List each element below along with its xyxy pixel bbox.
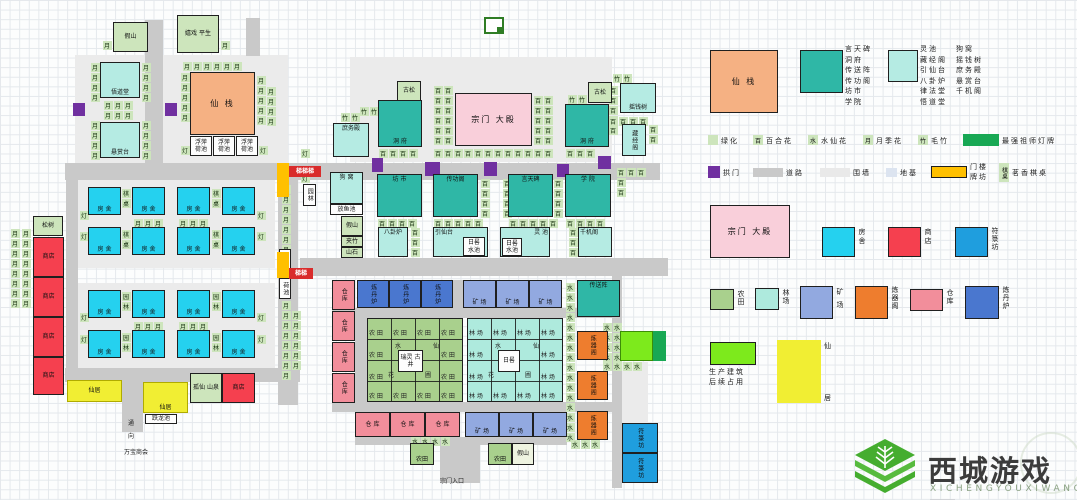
academy: 学 院 — [565, 174, 611, 217]
plant-cell: 月 — [221, 41, 230, 50]
plant-cell: 水 — [566, 383, 575, 392]
legend-foundation-swatch — [886, 168, 897, 177]
plant-cell: 水 — [566, 363, 575, 372]
house: 房 舍 — [177, 330, 210, 358]
duckweed-lotus-pond-label: 浮萍 荷池 — [214, 138, 234, 155]
legend-inn-swatch: 仙 栈 — [710, 50, 778, 113]
plant-strip: 百百百百 — [553, 178, 563, 218]
duckweed-lotus-pond: 浮萍 荷池 — [236, 136, 258, 156]
plant-cell: 百 — [534, 149, 543, 158]
plant-strip: 灯 — [256, 210, 266, 220]
forge-pavilion: 炼器阁 — [577, 371, 608, 400]
yinxian-platform-label: 引仙台 — [434, 228, 454, 238]
plant-cell: 百 — [524, 149, 533, 158]
plant-strip: 灯 — [258, 145, 268, 155]
plant-strip: 月月月月月 — [180, 72, 190, 122]
plant-strip: 月 — [220, 40, 230, 50]
legend-bamboo-label: 毛竹 — [931, 136, 949, 146]
plant-cell: 月 — [181, 73, 190, 82]
legend-house-swatch — [822, 227, 855, 257]
plant-cell: 月 — [11, 299, 20, 308]
scripture-pavilion: 藏经阁 — [622, 124, 646, 156]
legend-mine-label: 矿场 — [835, 288, 845, 319]
plant-cell: 园 — [122, 333, 131, 342]
plant-cell: 水 — [566, 373, 575, 382]
plant-cell: 百 — [444, 116, 453, 125]
house: 房 舍 — [132, 290, 165, 318]
money-tree: 摇钱树 — [620, 83, 656, 113]
legend-list-item: 学院 — [845, 97, 872, 108]
warehouse-label: 仓 库 — [435, 420, 451, 430]
plant-cell: 月 — [193, 62, 202, 71]
mine: 矿 场 — [463, 280, 496, 308]
plant-strip: 百百百 — [568, 227, 578, 257]
plant-cell: 月 — [282, 235, 291, 244]
plant-cell: 百 — [389, 149, 398, 158]
house-label: 房 舍 — [231, 205, 247, 215]
arch-gate — [484, 162, 497, 176]
shop: 商店 — [222, 373, 255, 403]
immortal-inn-label: 仙 栈 — [209, 98, 236, 110]
plant-cell: 月 — [181, 113, 190, 122]
plant-cell: 竹 — [341, 113, 350, 122]
warehouse: 仓库 — [332, 373, 355, 403]
road — [355, 308, 367, 403]
map-text: 农 田 — [369, 375, 383, 382]
plant-cell: 百 — [434, 96, 443, 105]
legend-narcissus-swatch: 水 — [808, 135, 818, 145]
plant-strip: 竹竹 — [567, 94, 587, 104]
plant-cell: 百 — [379, 149, 388, 158]
legend-talisman-label: 符箓坊 — [990, 227, 1000, 259]
plant-cell: 月 — [257, 106, 266, 115]
plant-cell: 桌 — [212, 199, 221, 208]
plant-cell: 月 — [292, 341, 301, 350]
plant-cell: 百 — [474, 149, 483, 158]
legend-lamp-label: 最强祖师灯牌 — [1002, 136, 1056, 146]
legend-rose-swatch: 月 — [863, 135, 873, 145]
sect-main-hall-label: 宗门 大殿 — [470, 114, 517, 126]
legend-bamboo-swatch: 竹 — [918, 135, 928, 145]
map-text: 仙 — [533, 344, 539, 351]
plant-cell: 百 — [534, 116, 543, 125]
legend-gatehouse-label-2: 牌坊 — [970, 172, 988, 182]
legend-list-item: 灵池 — [920, 44, 947, 55]
legend-list-item: 摇钱树 — [956, 55, 983, 66]
plant-cell: 月 — [22, 269, 31, 278]
play-block-label: 嬉戏 平生 — [184, 29, 212, 39]
oleander-label: 夹竹 — [345, 237, 359, 247]
house-label: 房 舍 — [186, 205, 202, 215]
qianji-pavilion: 千机阁 — [578, 227, 612, 257]
skill-pavilion: 传功阁 — [433, 174, 478, 217]
rockery-label: 假山 — [516, 449, 530, 459]
arch-gate — [598, 156, 611, 169]
legend-list-item: 狗窝 — [956, 44, 983, 55]
plant-cell: 林 — [212, 343, 221, 352]
teleport-array: 传送阵 — [577, 280, 620, 317]
plant-cell: 月 — [11, 249, 20, 258]
plant-cell: 林 — [122, 302, 131, 311]
plant-strip: 月月月月 — [141, 120, 151, 160]
legend-lightcyan-items-2: 狗窝摇钱树庶务殿悬赏台千机阁 — [956, 44, 983, 97]
plant-cell: 月 — [91, 63, 100, 72]
plant-cell: 月 — [257, 116, 266, 125]
sundial-pool-label: 日晷 水池 — [503, 239, 521, 256]
legend-reserved-label-2: 后续占用 — [709, 377, 745, 387]
map-text: 农 田 — [369, 353, 383, 360]
map-text: 农 田 — [369, 394, 383, 401]
legend-gatehouse-swatch — [931, 166, 967, 178]
plant-cell: 百 — [411, 248, 420, 257]
plant-cell: 月 — [114, 101, 123, 110]
house-label: 房 舍 — [97, 348, 113, 358]
road — [246, 18, 260, 56]
plant-cell: 林 — [122, 343, 131, 352]
leap-dragon-pond-label: 跃龙池 — [151, 414, 171, 424]
map-text: 林 场 — [469, 331, 483, 338]
mine-label: 矿 场 — [542, 427, 558, 437]
house-label: 房 舍 — [186, 245, 202, 255]
alchemy-furnace: 炼丹炉 — [357, 280, 389, 308]
plant-cell: 百 — [566, 149, 575, 158]
rockery: 假山 — [512, 443, 534, 465]
plant-strip: 百百百百 — [378, 148, 418, 158]
plant-cell: 园 — [212, 292, 221, 301]
plant-cell: 百 — [544, 136, 553, 145]
plant-cell: 月 — [142, 93, 151, 102]
old-pine: 古松 — [397, 81, 421, 101]
forge-pavilion-label: 炼器阁 — [588, 414, 598, 437]
mountain-rock-label: 山石 — [345, 248, 359, 258]
plant-cell: 百 — [569, 248, 578, 257]
plant-cell: 百 — [609, 106, 618, 115]
map-text: 水 — [395, 344, 401, 351]
compound-wall — [622, 362, 648, 424]
plant-strip: 园林 — [121, 332, 131, 352]
watermark-site-romanized: XICHENGYOUXIWANG — [930, 484, 1077, 494]
plant-cell: 灯 — [257, 232, 266, 241]
house: 房 舍 — [132, 187, 165, 215]
legend-greenery-swatch — [708, 135, 718, 145]
plant-cell: 月 — [11, 229, 20, 238]
farm-plot-small: 农田 — [410, 443, 434, 465]
arch-gate — [73, 103, 85, 116]
plant-cell: 月 — [11, 259, 20, 268]
plant-cell: 月 — [22, 249, 31, 258]
map-text: 农 田 — [441, 394, 455, 401]
heaven-stele-label: 言天碑 — [520, 175, 540, 185]
plant-cell: 月 — [142, 121, 151, 130]
plant-strip: 月月月月月月月月 — [10, 228, 20, 308]
shop: 商店 — [33, 357, 64, 395]
forge-pavilion-label: 炼器阁 — [588, 374, 598, 397]
plant-cell: 月 — [142, 73, 151, 82]
forge-pavilion: 炼器阁 — [577, 331, 608, 360]
plant-strip: 水水水 — [570, 439, 600, 449]
map-text: 仙 — [433, 344, 439, 351]
plant-cell: 月 — [282, 361, 291, 370]
legend-reserved-swatch — [710, 342, 756, 365]
immortal-inn: 仙 栈 — [190, 72, 255, 135]
house-label: 房 舍 — [186, 308, 202, 318]
plant-cell: 月 — [233, 62, 242, 71]
plant-strip: 灯 — [256, 334, 266, 344]
legend-arch-swatch — [708, 166, 720, 178]
plant-cell: 月 — [282, 205, 291, 214]
plant-cell: 月 — [22, 279, 31, 288]
plant-cell: 百 — [411, 228, 420, 237]
map-text: 农 田 — [417, 331, 431, 338]
plant-cell: 灯 — [301, 149, 310, 158]
plant-cell: 月 — [257, 96, 266, 105]
legend-lamp-swatch — [963, 134, 999, 146]
legend-mine-swatch — [800, 286, 833, 319]
plant-cell: 灯 — [259, 146, 268, 155]
sundial: 日晷 — [498, 350, 520, 372]
plant-cell: 百 — [617, 188, 626, 197]
plant-cell: 百 — [434, 86, 443, 95]
teleport-array-label: 传送阵 — [588, 281, 608, 291]
warehouse-label: 仓库 — [339, 287, 349, 303]
mine-label: 矿 场 — [508, 427, 524, 437]
ancient-well-label: 瑞灵 古井 — [399, 353, 422, 370]
warehouse-label: 仓 库 — [400, 420, 416, 430]
map-text: 林 场 — [541, 394, 555, 401]
plant-strip: 月 — [102, 40, 112, 50]
rockery: 假山 — [113, 22, 148, 52]
talisman-shop-label: 符箓坊 — [635, 457, 645, 480]
legend-main-hall-swatch: 宗门 大殿 — [710, 205, 790, 258]
cave-mansion: 洞 府 — [565, 104, 609, 147]
plant-cell: 百 — [576, 149, 585, 158]
old-pine-label: 古松 — [402, 86, 416, 96]
plant-cell: 月 — [114, 111, 123, 120]
plant-cell: 月 — [22, 289, 31, 298]
plant-cell: 百 — [534, 96, 543, 105]
house: 房 舍 — [132, 330, 165, 358]
shop: 商店 — [33, 237, 64, 277]
warehouse: 仓库 — [332, 280, 355, 310]
legend-foundation-label: 地基 — [900, 168, 918, 178]
legend-residence-label-bottom: 居 — [824, 393, 833, 403]
shuwu-hall-label: 庶务殿 — [341, 124, 361, 134]
plant-strip: 月月月月月月月月 — [281, 300, 291, 380]
plant-strip: 棋桌 — [121, 188, 131, 208]
legend-warehouse-swatch — [910, 289, 943, 311]
ancient-well: 瑞灵 古井 — [398, 350, 423, 372]
legend-greenery-label: 绿化 — [721, 136, 739, 146]
plant-cell: 竹 — [568, 95, 577, 104]
immortal-residence-label: 仙居 — [158, 403, 172, 413]
plant-cell: 月 — [104, 111, 113, 120]
legend-residence-swatch — [777, 340, 821, 403]
map-text: 农 田 — [441, 375, 455, 382]
shop-label: 商店 — [41, 371, 55, 381]
mine-label: 矿 场 — [505, 298, 521, 308]
plant-strip: 月月月 — [103, 110, 133, 120]
plant-cell: 水 — [566, 343, 575, 352]
plant-cell: 百 — [444, 149, 453, 158]
stairs-label: 梯梯梯 — [295, 167, 315, 177]
plant-strip: 棋桌 — [211, 229, 221, 249]
plant-cell: 水 — [566, 333, 575, 342]
house-label: 房 舍 — [231, 348, 247, 358]
plant-cell: 百 — [649, 135, 658, 144]
alchemy-furnace-label: 炼丹炉 — [368, 283, 378, 306]
stairs-label: 梯梯 — [294, 269, 308, 279]
plant-cell: 百 — [554, 179, 563, 188]
plant-cell: 月 — [183, 62, 192, 71]
farm-plot-small: 农田 — [488, 443, 512, 465]
shop-label: 商店 — [41, 252, 55, 262]
plant-cell: 百 — [649, 125, 658, 134]
plant-cell: 月 — [91, 141, 100, 150]
legend-road-swatch — [753, 168, 783, 177]
sundial-label: 日晷 — [502, 356, 516, 366]
plant-cell: 百 — [554, 209, 563, 218]
alchemy-furnace: 炼丹炉 — [421, 280, 453, 308]
shop: 商店 — [33, 277, 64, 317]
plant-cell: 百 — [434, 149, 443, 158]
plant-cell: 百 — [514, 149, 523, 158]
legend-reserved-label-1: 生产建筑 — [709, 367, 745, 377]
legend-wall-swatch — [820, 168, 850, 177]
plant-cell: 月 — [142, 141, 151, 150]
sect-layout-map: 月月月月月月月月月月月月月月月月月月月月月月月月月月月月月月月月月月月月月月月月… — [0, 0, 1077, 500]
plant-cell: 百 — [504, 149, 513, 158]
plant-cell: 月 — [11, 279, 20, 288]
plant-strip: 月月月月月月 — [182, 61, 242, 71]
plant-cell: 月 — [142, 63, 151, 72]
plant-cell: 水 — [591, 440, 600, 449]
duckweed-lotus-pond: 浮萍 荷池 — [190, 136, 212, 156]
plant-cell: 百 — [609, 126, 618, 135]
plant-cell: 百 — [544, 126, 553, 135]
legend-farm-swatch — [710, 289, 734, 310]
spirit-pool-label: 灵 池 — [533, 228, 549, 238]
pine-tree-label: 松树 — [41, 221, 55, 231]
plant-cell: 水 — [566, 323, 575, 332]
arch-gate — [372, 158, 383, 172]
plant-cell: 月 — [292, 361, 301, 370]
plant-cell: 水 — [566, 303, 575, 312]
plant-cell: 水 — [566, 283, 575, 292]
plant-strip: 百百百百百 — [543, 95, 553, 145]
farm-plot-small-label: 农田 — [493, 455, 507, 465]
lotus-pond-label: 荷池 — [280, 281, 290, 297]
leap-dragon-pond: 跃龙池 — [145, 414, 177, 424]
map-text: 林 场 — [493, 331, 507, 338]
plant-strip: 竹竹 — [359, 106, 379, 116]
arch-gate — [165, 103, 177, 116]
plant-cell: 园 — [212, 333, 221, 342]
plant-strip: 百百百 — [410, 227, 420, 257]
plant-cell: 水 — [566, 393, 575, 402]
plant-cell: 月 — [181, 83, 190, 92]
plant-cell: 月 — [142, 83, 151, 92]
gate-tower — [277, 163, 289, 197]
map-text: 林 场 — [469, 353, 483, 360]
legend-chess-swatch: 棋桌 — [999, 163, 1009, 182]
house: 房 舍 — [88, 330, 121, 358]
plant-cell: 月 — [103, 41, 112, 50]
plant-cell: 百 — [444, 96, 453, 105]
plant-cell: 桌 — [212, 240, 221, 249]
plant-cell: 百 — [434, 116, 443, 125]
warehouse-label: 仓库 — [339, 349, 349, 365]
sect-main-hall: 宗门 大殿 — [455, 93, 532, 146]
lone-immortal-spring: 孤仙 山泉 — [190, 373, 222, 403]
house: 房 舍 — [222, 187, 255, 215]
legend-house-label: 房舍 — [857, 228, 867, 258]
plant-cell: 月 — [91, 151, 100, 160]
bounty-platform: 悬赏台 — [100, 122, 140, 158]
legend-list-item: 悟道堂 — [920, 97, 947, 108]
heaven-stele: 言天碑 — [508, 174, 553, 217]
play-block: 嬉戏 平生 — [177, 15, 219, 53]
watermark: 西城游戏网 XICHENGYOUXIWANG — [852, 438, 1077, 500]
plant-cell: 灯 — [257, 211, 266, 220]
plant-cell: 月 — [282, 301, 291, 310]
talisman-shop: 符箓坊 — [622, 423, 658, 453]
sundial-pool-label: 日晷 水池 — [464, 238, 484, 255]
map-text: 林 场 — [541, 331, 555, 338]
plant-cell: 百 — [444, 136, 453, 145]
legend-lily-label: 百合花 — [766, 136, 793, 146]
plant-cell: 月 — [282, 331, 291, 340]
plant-cell: 百 — [544, 106, 553, 115]
plant-cell: 水 — [603, 362, 612, 371]
legend-forge-swatch — [855, 286, 888, 319]
lotus-pond: 荷池 — [279, 278, 291, 299]
plant-strip: 月月月月 — [90, 120, 100, 160]
plant-cell: 百 — [444, 106, 453, 115]
lone-immortal-spring-label: 孤仙 山泉 — [192, 383, 220, 393]
reserved-production-plot — [620, 331, 653, 361]
plant-cell: 月 — [257, 86, 266, 95]
rockery-label: 假山 — [345, 221, 359, 231]
legend-shop-swatch — [888, 227, 921, 257]
plant-cell: 百 — [494, 149, 503, 158]
plant-cell: 月 — [124, 101, 133, 110]
plant-cell: 月 — [91, 93, 100, 102]
plant-cell: 百 — [534, 126, 543, 135]
road — [66, 180, 78, 370]
house: 房 舍 — [132, 227, 165, 255]
legend-list-item: 传功阁 — [845, 76, 872, 87]
map-text: 万宝商会 — [124, 450, 148, 457]
academy-label: 学 院 — [580, 175, 596, 185]
house: 房 舍 — [88, 227, 121, 255]
plant-cell: 百 — [637, 168, 646, 177]
road — [300, 258, 668, 276]
cursor-marker-dot — [497, 27, 503, 33]
plant-cell: 月 — [223, 62, 232, 71]
plant-cell: 百 — [554, 199, 563, 208]
legend-list-item: 藏经阁 — [920, 55, 947, 66]
house-label: 房 舍 — [141, 308, 157, 318]
scripture-pavilion-label: 藏经阁 — [629, 129, 639, 152]
plant-cell: 百 — [409, 149, 418, 158]
plant-cell: 月 — [11, 239, 20, 248]
plant-cell: 水 — [566, 403, 575, 412]
plant-strip: 月月月月 — [90, 62, 100, 102]
legend-arch-label: 拱门 — [723, 168, 741, 178]
plant-cell: 百 — [434, 106, 443, 115]
plant-cell: 百 — [617, 178, 626, 187]
plant-cell: 水 — [581, 440, 590, 449]
